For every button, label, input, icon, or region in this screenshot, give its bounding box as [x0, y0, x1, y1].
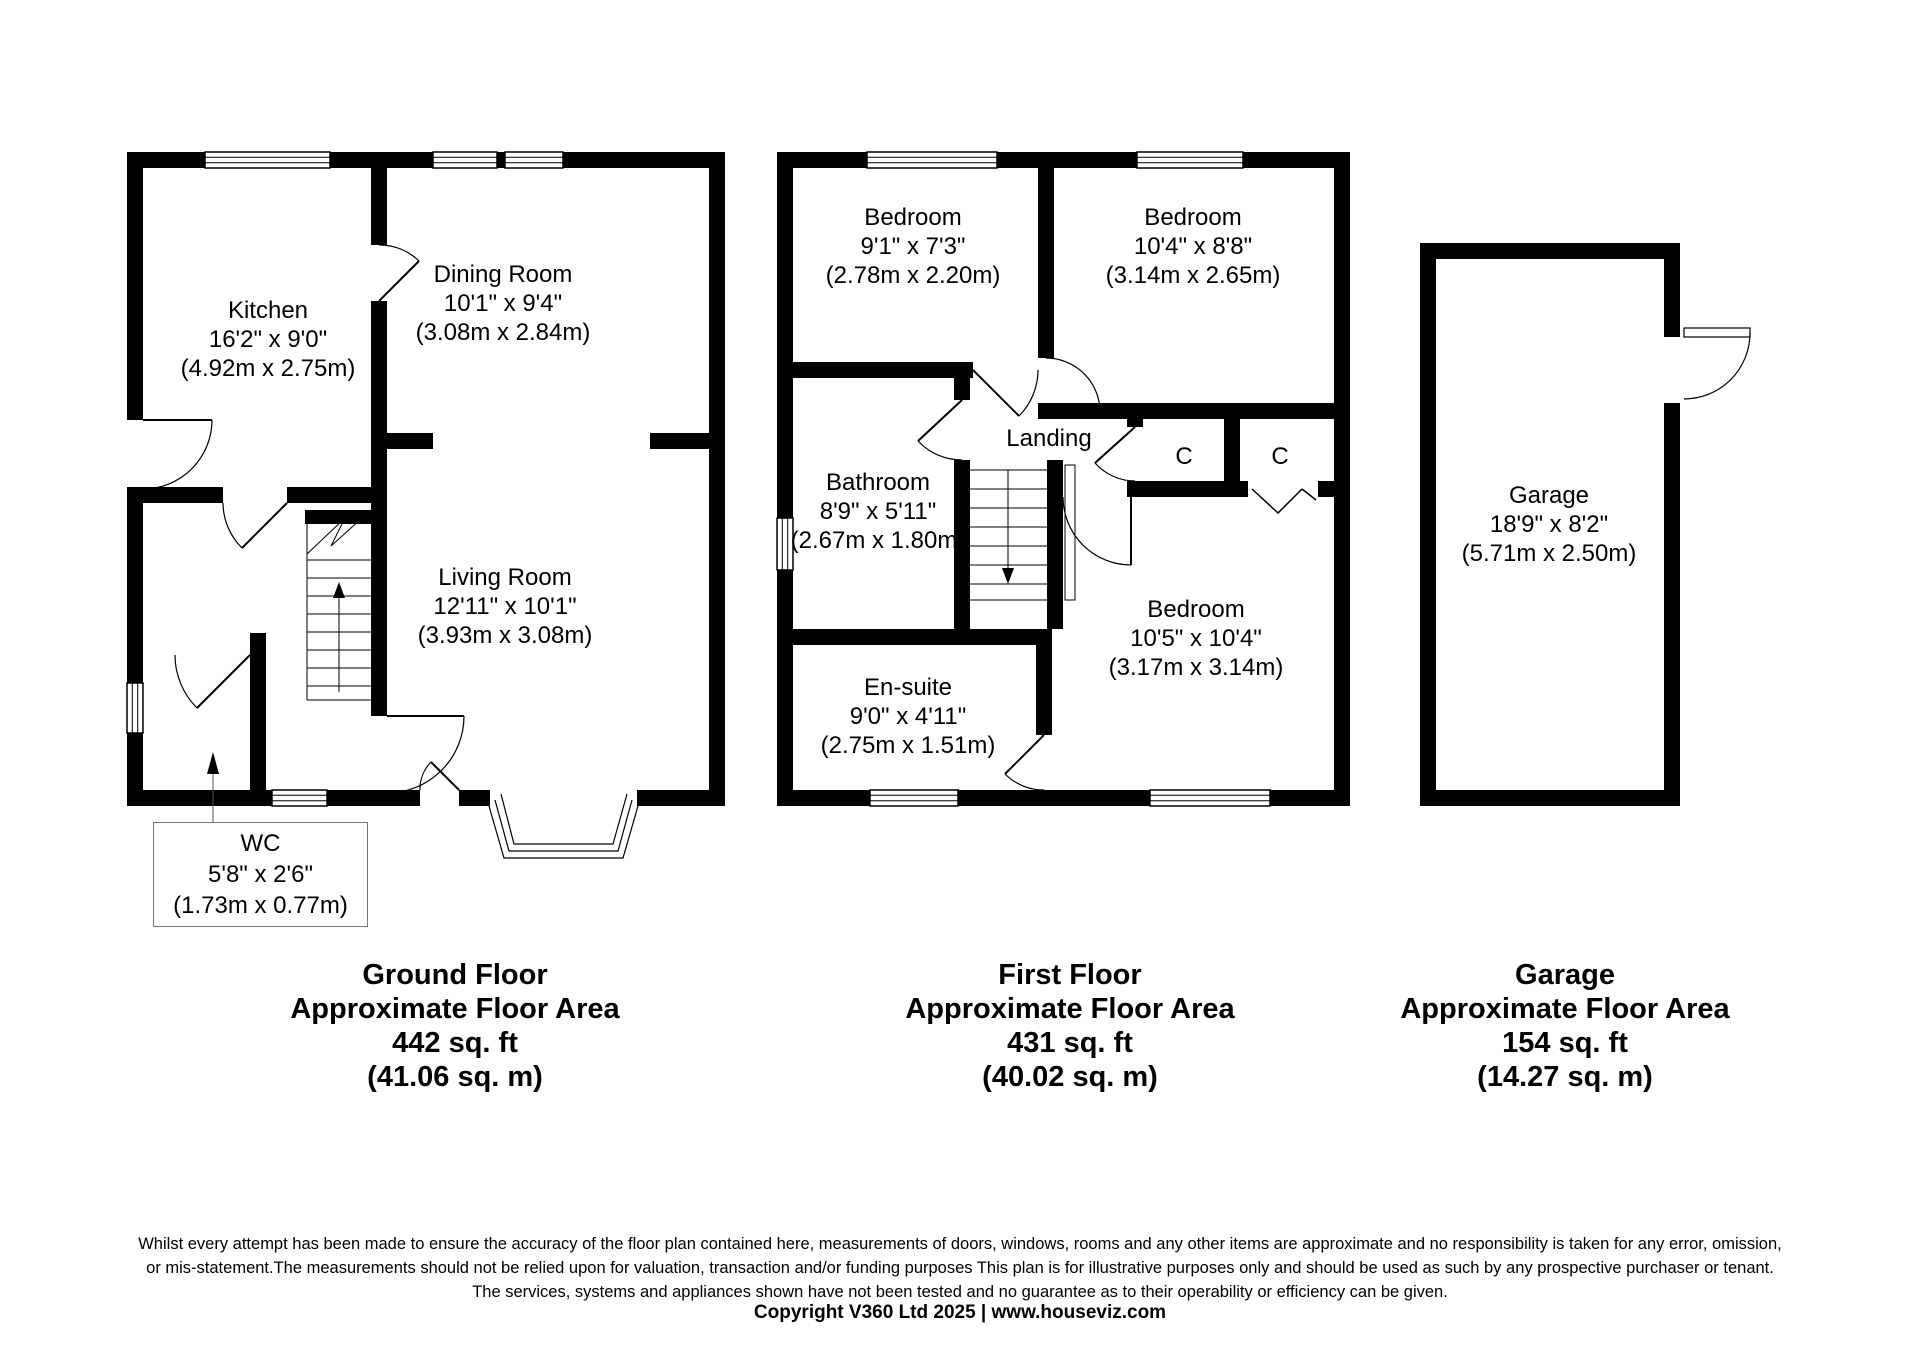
bathroom-dims-imperial: 8'9" x 5'11"	[791, 497, 966, 526]
garage-summary-area-m: (14.27 sq. m)	[1400, 1060, 1729, 1094]
closet1-name: C	[1175, 443, 1192, 471]
window	[505, 152, 563, 168]
garage-dims-imperial: 18'9" x 8'2"	[1462, 510, 1637, 539]
door	[1063, 497, 1131, 565]
ensuite-name: En-suite	[821, 673, 996, 702]
closet-door	[1095, 427, 1135, 481]
bedroom1-dims-metric: (2.78m x 2.20m)	[826, 261, 1001, 290]
door	[143, 420, 212, 489]
garage-room-label: Garage 18'9" x 8'2" (5.71m x 2.50m)	[1462, 481, 1637, 568]
window	[1150, 790, 1270, 806]
dining-name: Dining Room	[416, 260, 591, 289]
bathroom-name: Bathroom	[791, 468, 966, 497]
bay-window	[489, 794, 638, 858]
window	[433, 152, 497, 168]
ensuite-dims-imperial: 9'0" x 4'11"	[821, 702, 996, 731]
closet1-label: C	[1175, 443, 1192, 471]
garage-summary: Garage Approximate Floor Area 154 sq. ft…	[1400, 958, 1729, 1094]
bedroom2-dims-imperial: 10'4" x 8'8"	[1106, 232, 1281, 261]
window	[870, 790, 958, 806]
wc-dims-metric: (1.73m x 0.77m)	[154, 890, 367, 921]
landing-name: Landing	[1006, 425, 1091, 453]
garage-door-arc	[1684, 333, 1750, 399]
disclaimer-line-1: Whilst every attempt has been made to en…	[0, 1234, 1920, 1255]
bathroom-dims-metric: (2.67m x 1.80m)	[791, 526, 966, 555]
door	[1005, 735, 1044, 790]
ground-floor-walls	[127, 152, 725, 806]
kitchen-label: Kitchen 16'2" x 9'0" (4.92m x 2.75m)	[181, 296, 356, 383]
door	[379, 245, 419, 301]
bifold-closet-doors	[1252, 489, 1316, 513]
disclaimer-line-3: The services, systems and appliances sho…	[0, 1282, 1920, 1303]
ground-floor-plan	[127, 152, 725, 858]
window	[205, 152, 330, 168]
dining-dims-metric: (3.08m x 2.84m)	[416, 318, 591, 347]
bathroom-label: Bathroom 8'9" x 5'11" (2.67m x 1.80m)	[791, 468, 966, 555]
window	[127, 683, 143, 733]
kitchen-name: Kitchen	[181, 296, 356, 325]
floorplan-page: Kitchen 16'2" x 9'0" (4.92m x 2.75m) Din…	[0, 0, 1920, 1357]
window	[867, 152, 997, 168]
first-summary-title: First Floor	[905, 958, 1234, 992]
garage-dims-metric: (5.71m x 2.50m)	[1462, 539, 1637, 568]
first-floor-summary: First Floor Approximate Floor Area 431 s…	[905, 958, 1234, 1094]
living-dims-metric: (3.93m x 3.08m)	[418, 621, 593, 650]
kitchen-dims-imperial: 16'2" x 9'0"	[181, 325, 356, 354]
ground-floor-stairs	[307, 510, 371, 700]
ensuite-dims-metric: (2.75m x 1.51m)	[821, 731, 996, 760]
wc-leader-arrow	[207, 752, 219, 822]
door	[918, 400, 962, 460]
stairs-up-arrow	[333, 582, 345, 692]
garage-summary-title: Garage	[1400, 958, 1729, 992]
window	[1137, 152, 1243, 168]
window	[272, 790, 327, 806]
first-summary-area-ft: 431 sq. ft	[905, 1026, 1234, 1060]
ensuite-label: En-suite 9'0" x 4'11" (2.75m x 1.51m)	[821, 673, 996, 760]
garage-side-door	[1684, 328, 1750, 399]
ground-summary-title: Ground Floor	[290, 958, 619, 992]
first-summary-subtitle: Approximate Floor Area	[905, 992, 1234, 1026]
living-room-label: Living Room 12'11" x 10'1" (3.93m x 3.08…	[418, 563, 593, 650]
dining-dims-imperial: 10'1" x 9'4"	[416, 289, 591, 318]
ground-summary-subtitle: Approximate Floor Area	[290, 992, 619, 1026]
kitchen-dims-metric: (4.92m x 2.75m)	[181, 354, 356, 383]
wc-label-box: WC 5'8" x 2'6" (1.73m x 0.77m)	[153, 822, 368, 927]
door	[387, 716, 464, 793]
first-summary-area-m: (40.02 sq. m)	[905, 1060, 1234, 1094]
disclaimer-line-2: or mis-statement.The measurements should…	[0, 1258, 1920, 1279]
garage-summary-subtitle: Approximate Floor Area	[1400, 992, 1729, 1026]
door	[973, 370, 1038, 416]
bedroom2-name: Bedroom	[1106, 203, 1281, 232]
living-dims-imperial: 12'11" x 10'1"	[418, 592, 593, 621]
bedroom3-dims-imperial: 10'5" x 10'4"	[1109, 624, 1284, 653]
garage-name: Garage	[1462, 481, 1637, 510]
bedroom1-dims-imperial: 9'1" x 7'3"	[826, 232, 1001, 261]
bedroom2-dims-metric: (3.14m x 2.65m)	[1106, 261, 1281, 290]
ground-floor-summary: Ground Floor Approximate Floor Area 442 …	[290, 958, 619, 1094]
ground-summary-area-ft: 442 sq. ft	[290, 1026, 619, 1060]
door	[223, 503, 287, 548]
door	[175, 655, 250, 708]
bedroom2-label: Bedroom 10'4" x 8'8" (3.14m x 2.65m)	[1106, 203, 1281, 290]
wc-dims-imperial: 5'8" x 2'6"	[154, 859, 367, 890]
copyright-line: Copyright V360 Ltd 2025 | www.houseviz.c…	[0, 1301, 1920, 1325]
bedroom1-name: Bedroom	[826, 203, 1001, 232]
bedroom3-dims-metric: (3.17m x 3.14m)	[1109, 653, 1284, 682]
living-name: Living Room	[418, 563, 593, 592]
bedroom3-label: Bedroom 10'5" x 10'4" (3.17m x 3.14m)	[1109, 595, 1284, 682]
closet2-name: C	[1271, 443, 1288, 471]
garage-summary-area-ft: 154 sq. ft	[1400, 1026, 1729, 1060]
landing-label: Landing	[1006, 425, 1091, 453]
bedroom3-name: Bedroom	[1109, 595, 1284, 624]
ground-summary-area-m: (41.06 sq. m)	[290, 1060, 619, 1094]
front-door	[420, 762, 459, 790]
closet2-label: C	[1271, 443, 1288, 471]
dining-room-label: Dining Room 10'1" x 9'4" (3.08m x 2.84m)	[416, 260, 591, 347]
wc-name: WC	[154, 828, 367, 859]
bedroom1-label: Bedroom 9'1" x 7'3" (2.78m x 2.20m)	[826, 203, 1001, 290]
